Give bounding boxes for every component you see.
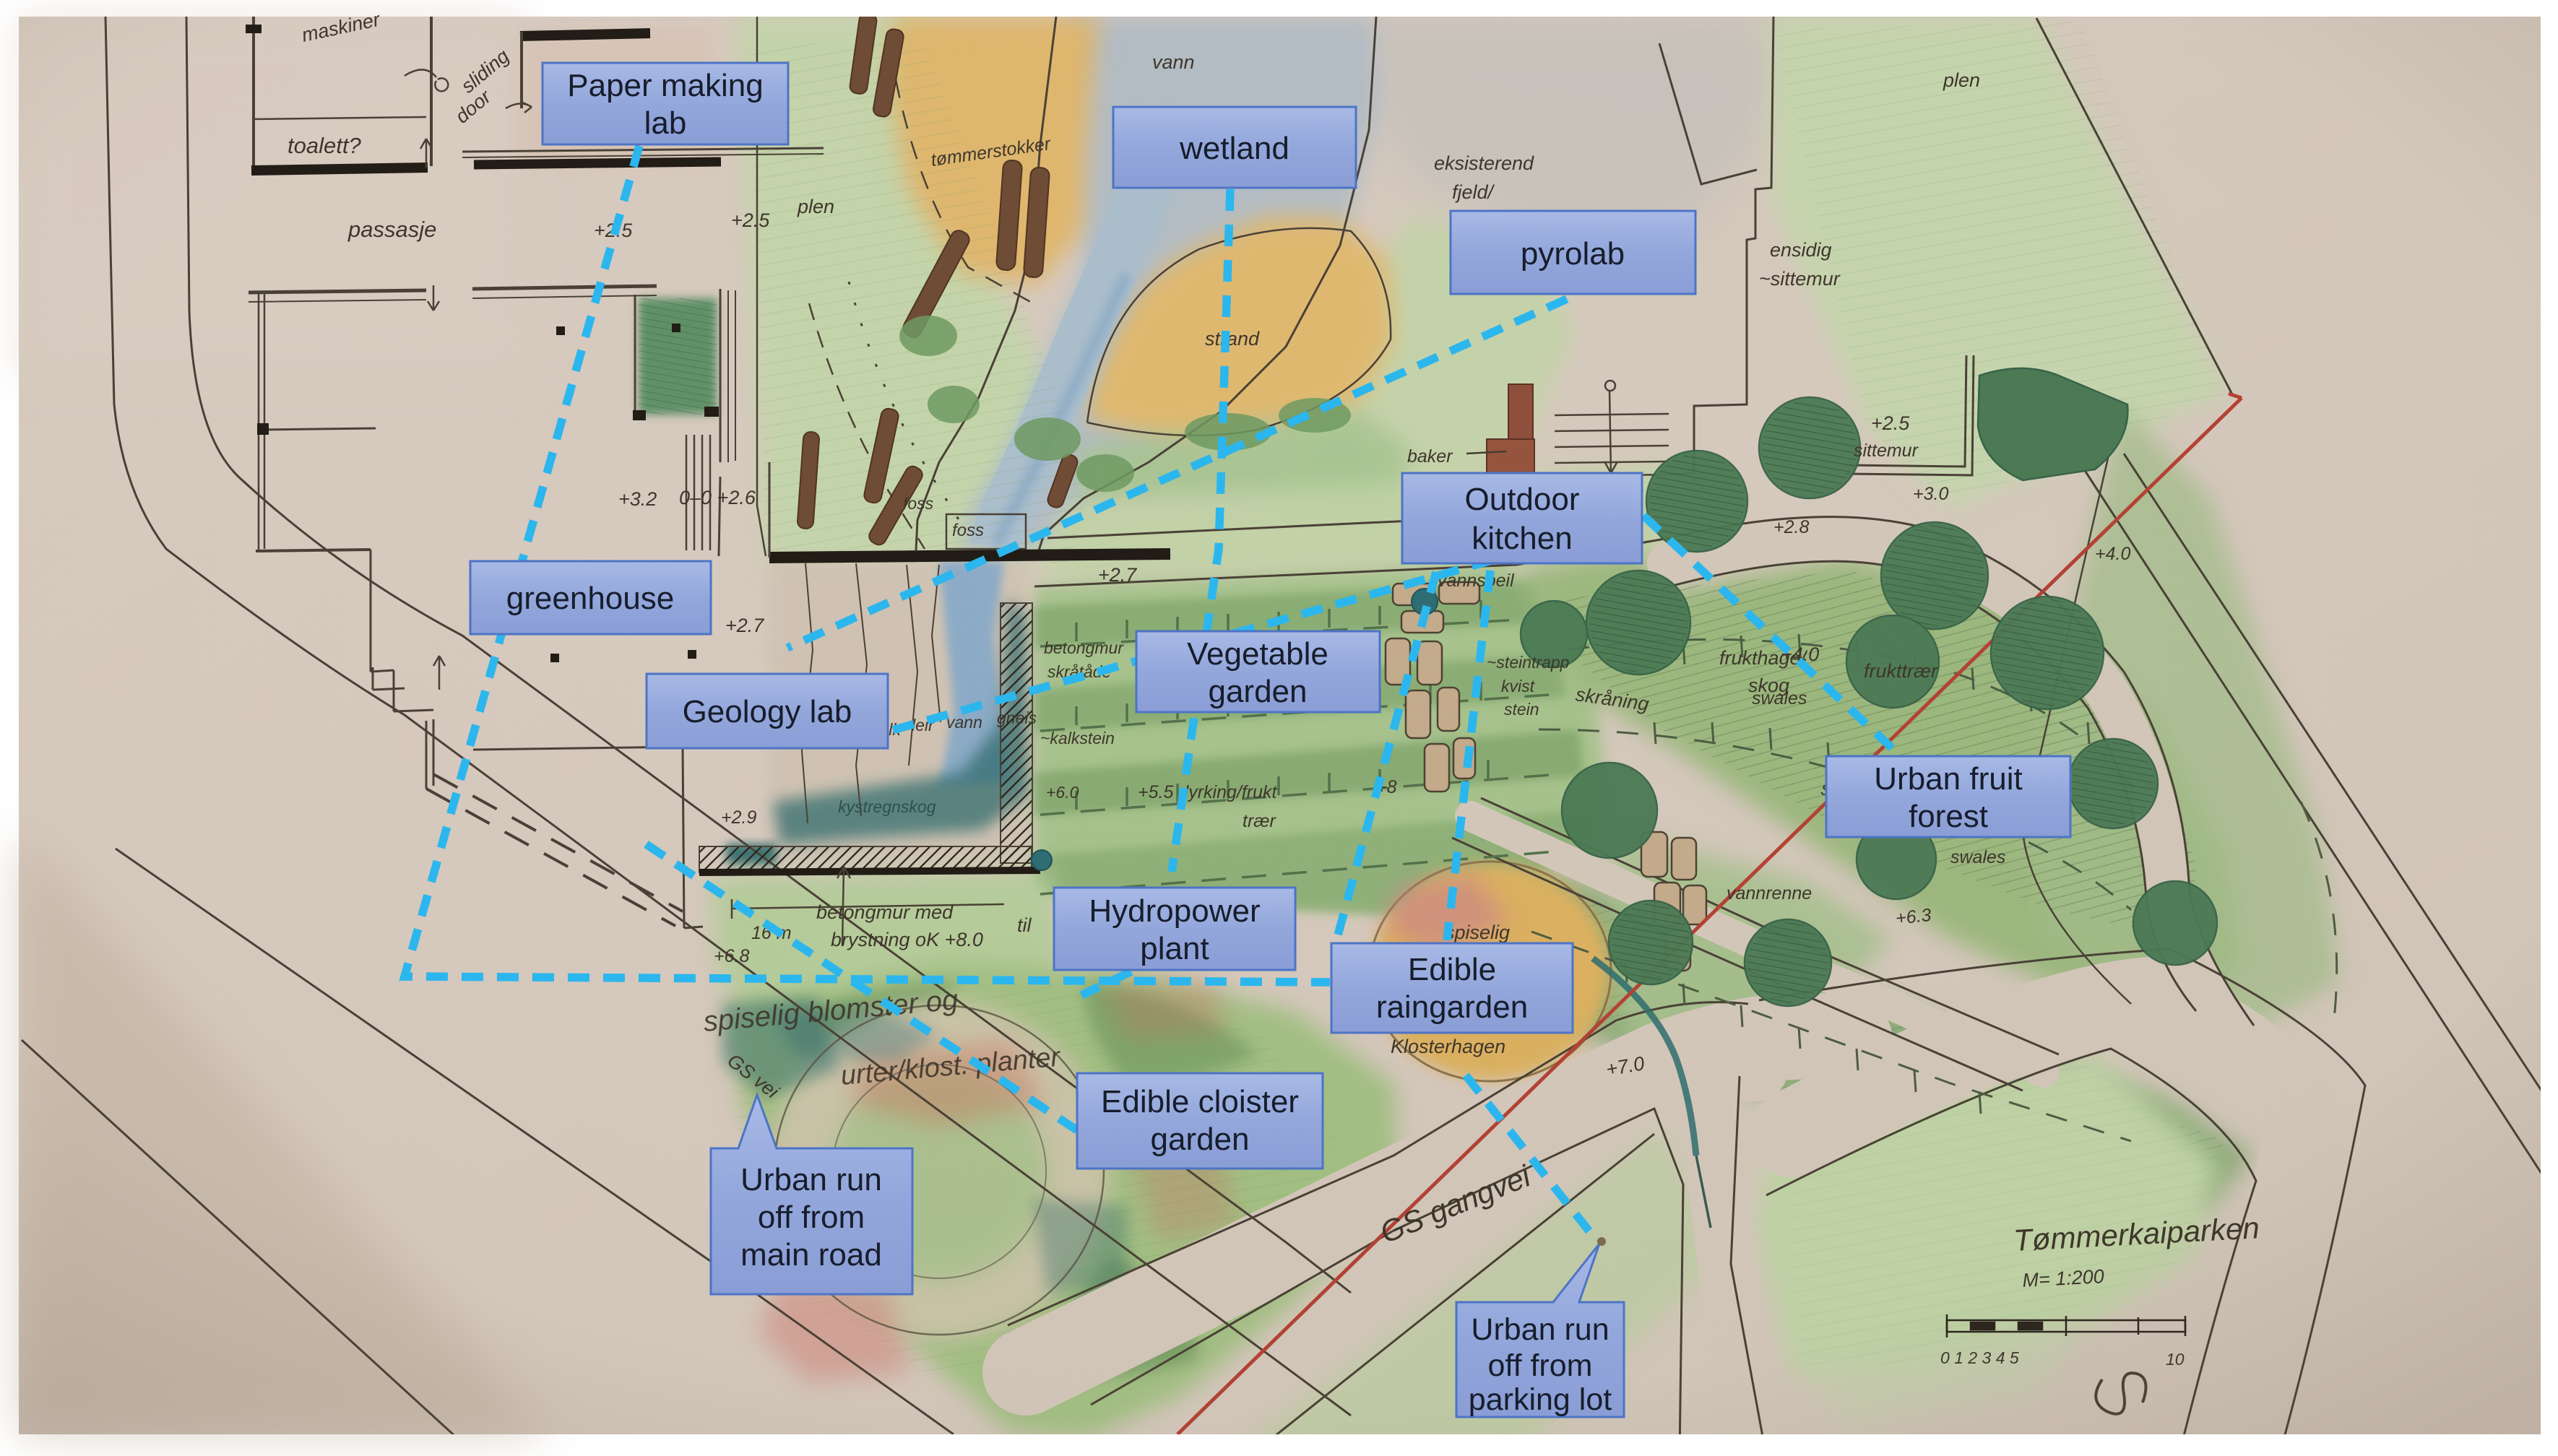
svg-text:Edible: Edible (1408, 952, 1496, 987)
svg-text:Urban fruit: Urban fruit (1874, 761, 2022, 797)
svg-text:Paper making: Paper making (567, 68, 763, 103)
svg-text:wetland: wetland (1179, 131, 1289, 166)
svg-text:off from: off from (758, 1200, 865, 1235)
svg-text:Edible cloister: Edible cloister (1101, 1084, 1299, 1119)
svg-text:Urban run: Urban run (740, 1162, 882, 1197)
svg-text:Urban run: Urban run (1471, 1312, 1609, 1347)
svg-text:off from: off from (1488, 1348, 1593, 1383)
svg-text:Geology lab: Geology lab (683, 694, 852, 729)
svg-text:garden: garden (1208, 674, 1307, 709)
svg-text:forest: forest (1909, 799, 1988, 834)
svg-text:Outdoor: Outdoor (1465, 482, 1580, 517)
svg-text:kitchen: kitchen (1472, 521, 1572, 556)
svg-text:Vegetable: Vegetable (1187, 636, 1328, 672)
svg-text:plant: plant (1140, 931, 1209, 966)
svg-text:parking lot: parking lot (1469, 1382, 1612, 1417)
svg-text:garden: garden (1150, 1122, 1249, 1157)
svg-text:greenhouse: greenhouse (506, 581, 674, 616)
svg-text:Hydropower: Hydropower (1089, 893, 1260, 929)
svg-text:lab: lab (644, 105, 687, 141)
svg-text:main road: main road (740, 1237, 882, 1273)
svg-text:raingarden: raingarden (1376, 989, 1528, 1025)
svg-text:pyrolab: pyrolab (1521, 236, 1625, 272)
